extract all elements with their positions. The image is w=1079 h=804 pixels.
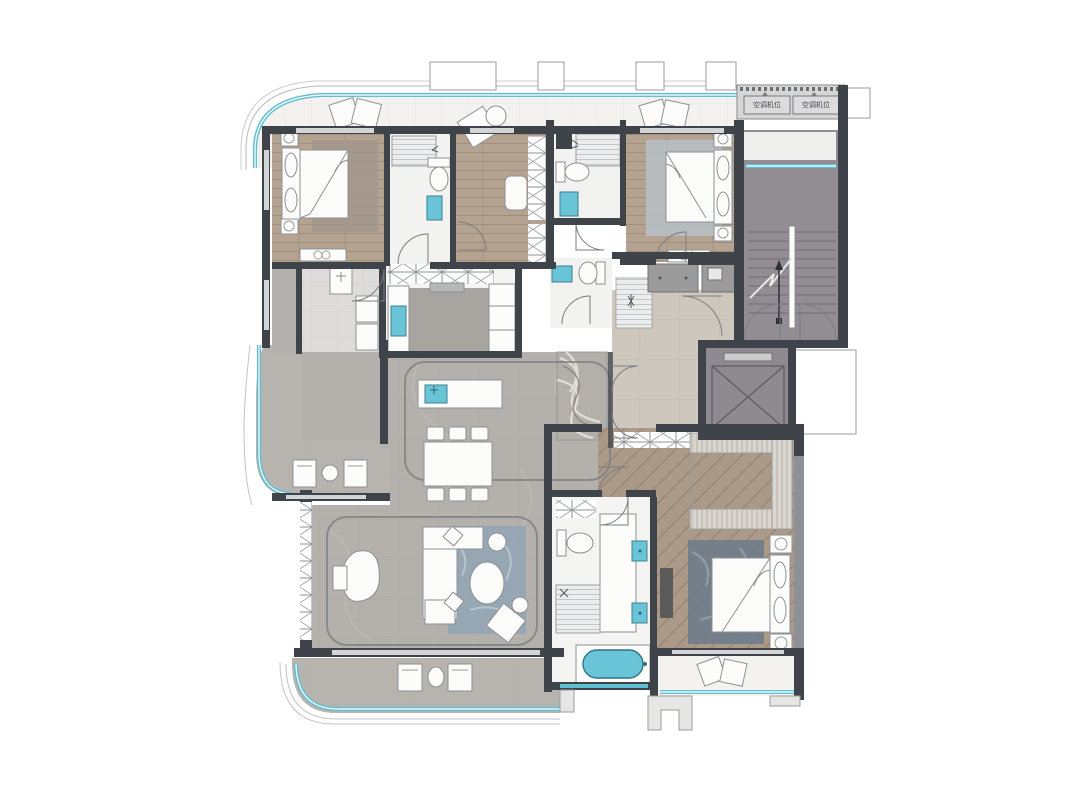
vanity bbox=[600, 514, 636, 632]
cooktop bbox=[430, 283, 464, 292]
coffee-table bbox=[470, 562, 504, 604]
bottom-balcony bbox=[292, 658, 560, 713]
side-table bbox=[488, 533, 506, 551]
bench bbox=[300, 249, 346, 261]
floor-plan: 空调机位 空调机位 bbox=[0, 0, 1079, 804]
toilet bbox=[579, 262, 605, 284]
structural-column bbox=[648, 696, 692, 730]
structural-column bbox=[560, 690, 574, 712]
kitchen-sink bbox=[391, 306, 406, 336]
bed bbox=[666, 152, 714, 222]
lounge-chair bbox=[342, 551, 379, 602]
shaft-void bbox=[794, 350, 856, 434]
wardrobe bbox=[528, 136, 548, 220]
desk bbox=[505, 176, 527, 210]
master-balcony bbox=[658, 654, 796, 696]
tv-console bbox=[660, 568, 673, 618]
kitchen bbox=[386, 264, 516, 354]
housework-room bbox=[302, 266, 382, 352]
stair-rail bbox=[789, 226, 795, 328]
balcony-chairs bbox=[398, 664, 472, 691]
laundry-niche bbox=[616, 278, 652, 328]
wardrobe bbox=[528, 224, 548, 264]
toilet bbox=[556, 162, 589, 182]
ac-unit-label: 空调机位 bbox=[802, 100, 830, 109]
stairwell bbox=[740, 130, 840, 344]
sink bbox=[427, 196, 442, 220]
shoe-cabinets bbox=[614, 432, 702, 448]
side-table bbox=[333, 566, 347, 590]
ac-platform: 空调机位 空调机位 bbox=[737, 85, 870, 119]
bathtub bbox=[576, 645, 650, 683]
floor-plan-drawing: 空调机位 空调机位 bbox=[0, 0, 1079, 804]
bed bbox=[300, 150, 348, 218]
dining-table bbox=[424, 427, 492, 501]
kitchen-island bbox=[418, 380, 502, 408]
elevator bbox=[706, 348, 856, 434]
column-stub bbox=[847, 88, 870, 118]
ac-unit-label: 空调机位 bbox=[753, 100, 781, 109]
structural-column bbox=[770, 696, 800, 706]
bath-cabinet bbox=[556, 500, 596, 518]
entry-cabinets bbox=[648, 264, 736, 292]
kitchen-tall-cabinet bbox=[489, 284, 515, 352]
sink bbox=[560, 192, 578, 216]
bed bbox=[712, 558, 770, 632]
toilet bbox=[428, 158, 450, 191]
